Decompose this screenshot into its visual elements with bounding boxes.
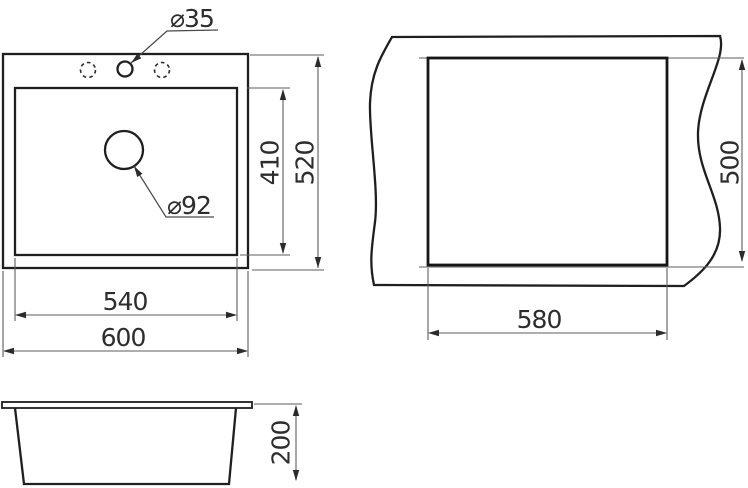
faucet-diameter-label: ⌀35 [170, 4, 214, 33]
dim-600-arrow-left [3, 348, 14, 354]
countertop-cutout-view: 500 580 [370, 36, 745, 340]
dim-200-arrow-bottom [293, 470, 299, 481]
drain-diameter-label: ⌀92 [167, 191, 211, 220]
drain-leader-arrow [134, 166, 142, 177]
dim-580-arrow-right [656, 330, 667, 336]
dim-540-arrow-right [226, 312, 237, 318]
cutout-rect [428, 58, 667, 265]
sink-width-label: 600 [101, 323, 146, 352]
dim-410-arrow-top [280, 89, 286, 100]
sink-side-view: 200 [2, 402, 302, 484]
faucet-leader-line [131, 30, 218, 63]
dim-520-arrow-bottom [315, 257, 321, 268]
faucet-hole [118, 62, 133, 77]
sink-length-label: 520 [291, 141, 320, 186]
dim-500-arrow-bottom [739, 251, 745, 262]
sink-body-profile [15, 408, 236, 484]
sink-depth-label: 200 [267, 421, 296, 466]
dim-410-arrow-bottom [280, 243, 286, 254]
dim-580-arrow-left [428, 330, 439, 336]
bowl-length-label: 410 [256, 141, 285, 186]
sink-flange [2, 402, 252, 408]
faucet-hole-option-left [81, 63, 96, 78]
dim-600-arrow-right [237, 348, 248, 354]
technical-drawing-canvas: ⌀35 ⌀92 410 520 540 600 [0, 0, 748, 488]
sink-outer-rect [3, 54, 248, 268]
countertop-outline [370, 36, 721, 286]
sink-top-view: ⌀35 ⌀92 410 520 540 600 [3, 4, 324, 357]
bowl-width-label: 540 [103, 287, 148, 316]
sink-bowl-rect [15, 88, 237, 255]
drain-hole [105, 131, 143, 169]
dim-200-arrow-top [293, 405, 299, 416]
dim-520-arrow-top [315, 56, 321, 67]
dim-500-arrow-top [739, 59, 745, 70]
cutout-length-label: 500 [716, 141, 745, 186]
faucet-hole-option-right [155, 63, 170, 78]
dim-540-arrow-left [15, 312, 26, 318]
cutout-width-label: 580 [517, 305, 562, 334]
